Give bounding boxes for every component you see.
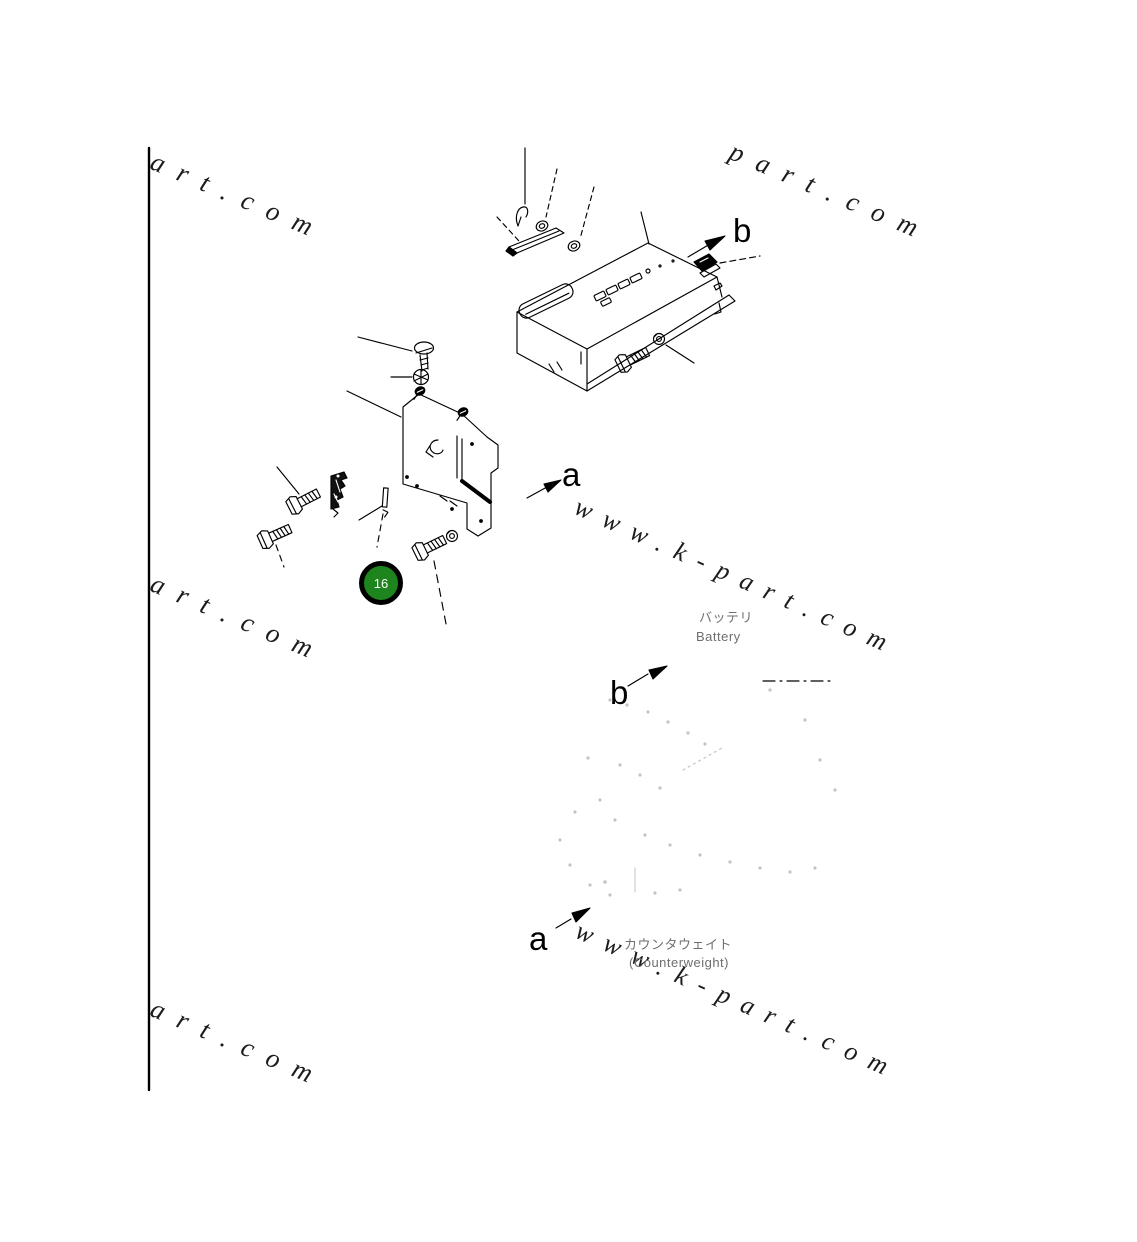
part-marker-16[interactable]: 16 <box>359 561 403 605</box>
cover-top-face <box>517 243 717 349</box>
battery-label-jp: バッテリ <box>699 609 753 627</box>
cover-bolt <box>614 343 652 375</box>
hex-bolt <box>285 485 323 517</box>
hinge-bracket <box>331 472 347 517</box>
view-arrow-b-top <box>688 236 725 257</box>
cover-handle <box>517 282 576 321</box>
faint-machine-outline <box>559 689 836 896</box>
battery-cover-assembly <box>497 148 760 391</box>
cotter-pin <box>516 207 527 226</box>
spring-washer <box>447 531 458 542</box>
view-arrow-a-mid <box>527 480 561 498</box>
pin-strip <box>382 488 390 517</box>
exploded-parts-drawing <box>0 0 1137 1242</box>
view-label-b-top: b <box>733 214 751 247</box>
washer <box>567 239 582 253</box>
counterweight-label-en: (Counterweight) <box>629 954 729 972</box>
bracket-plate-assembly <box>347 337 498 536</box>
cover-logo-emboss <box>594 260 674 306</box>
hex-bolt <box>411 531 449 563</box>
cover-front-face <box>517 312 587 391</box>
view-label-a-bottom: a <box>529 922 547 955</box>
pan-screw <box>415 342 434 371</box>
part-marker-number: 16 <box>374 576 388 591</box>
battery-label-en: Battery <box>696 628 741 646</box>
view-label-a-mid: a <box>562 458 580 491</box>
view-arrow-b-mid <box>628 666 667 686</box>
hex-bolt <box>256 520 294 551</box>
plate-bolt <box>410 385 426 399</box>
bracket-plate-outline <box>403 394 498 536</box>
view-arrow-a-bottom <box>556 908 590 928</box>
flange-nut <box>391 370 429 385</box>
counterweight-label-jp: カウンタウェイト <box>624 936 732 954</box>
parts-diagram-page: art.com part.com art.com www.k-part.com … <box>0 0 1137 1242</box>
hinge-rod <box>506 228 564 256</box>
washer <box>535 219 550 233</box>
clip-detail <box>426 440 443 457</box>
view-label-b-mid: b <box>610 676 628 709</box>
